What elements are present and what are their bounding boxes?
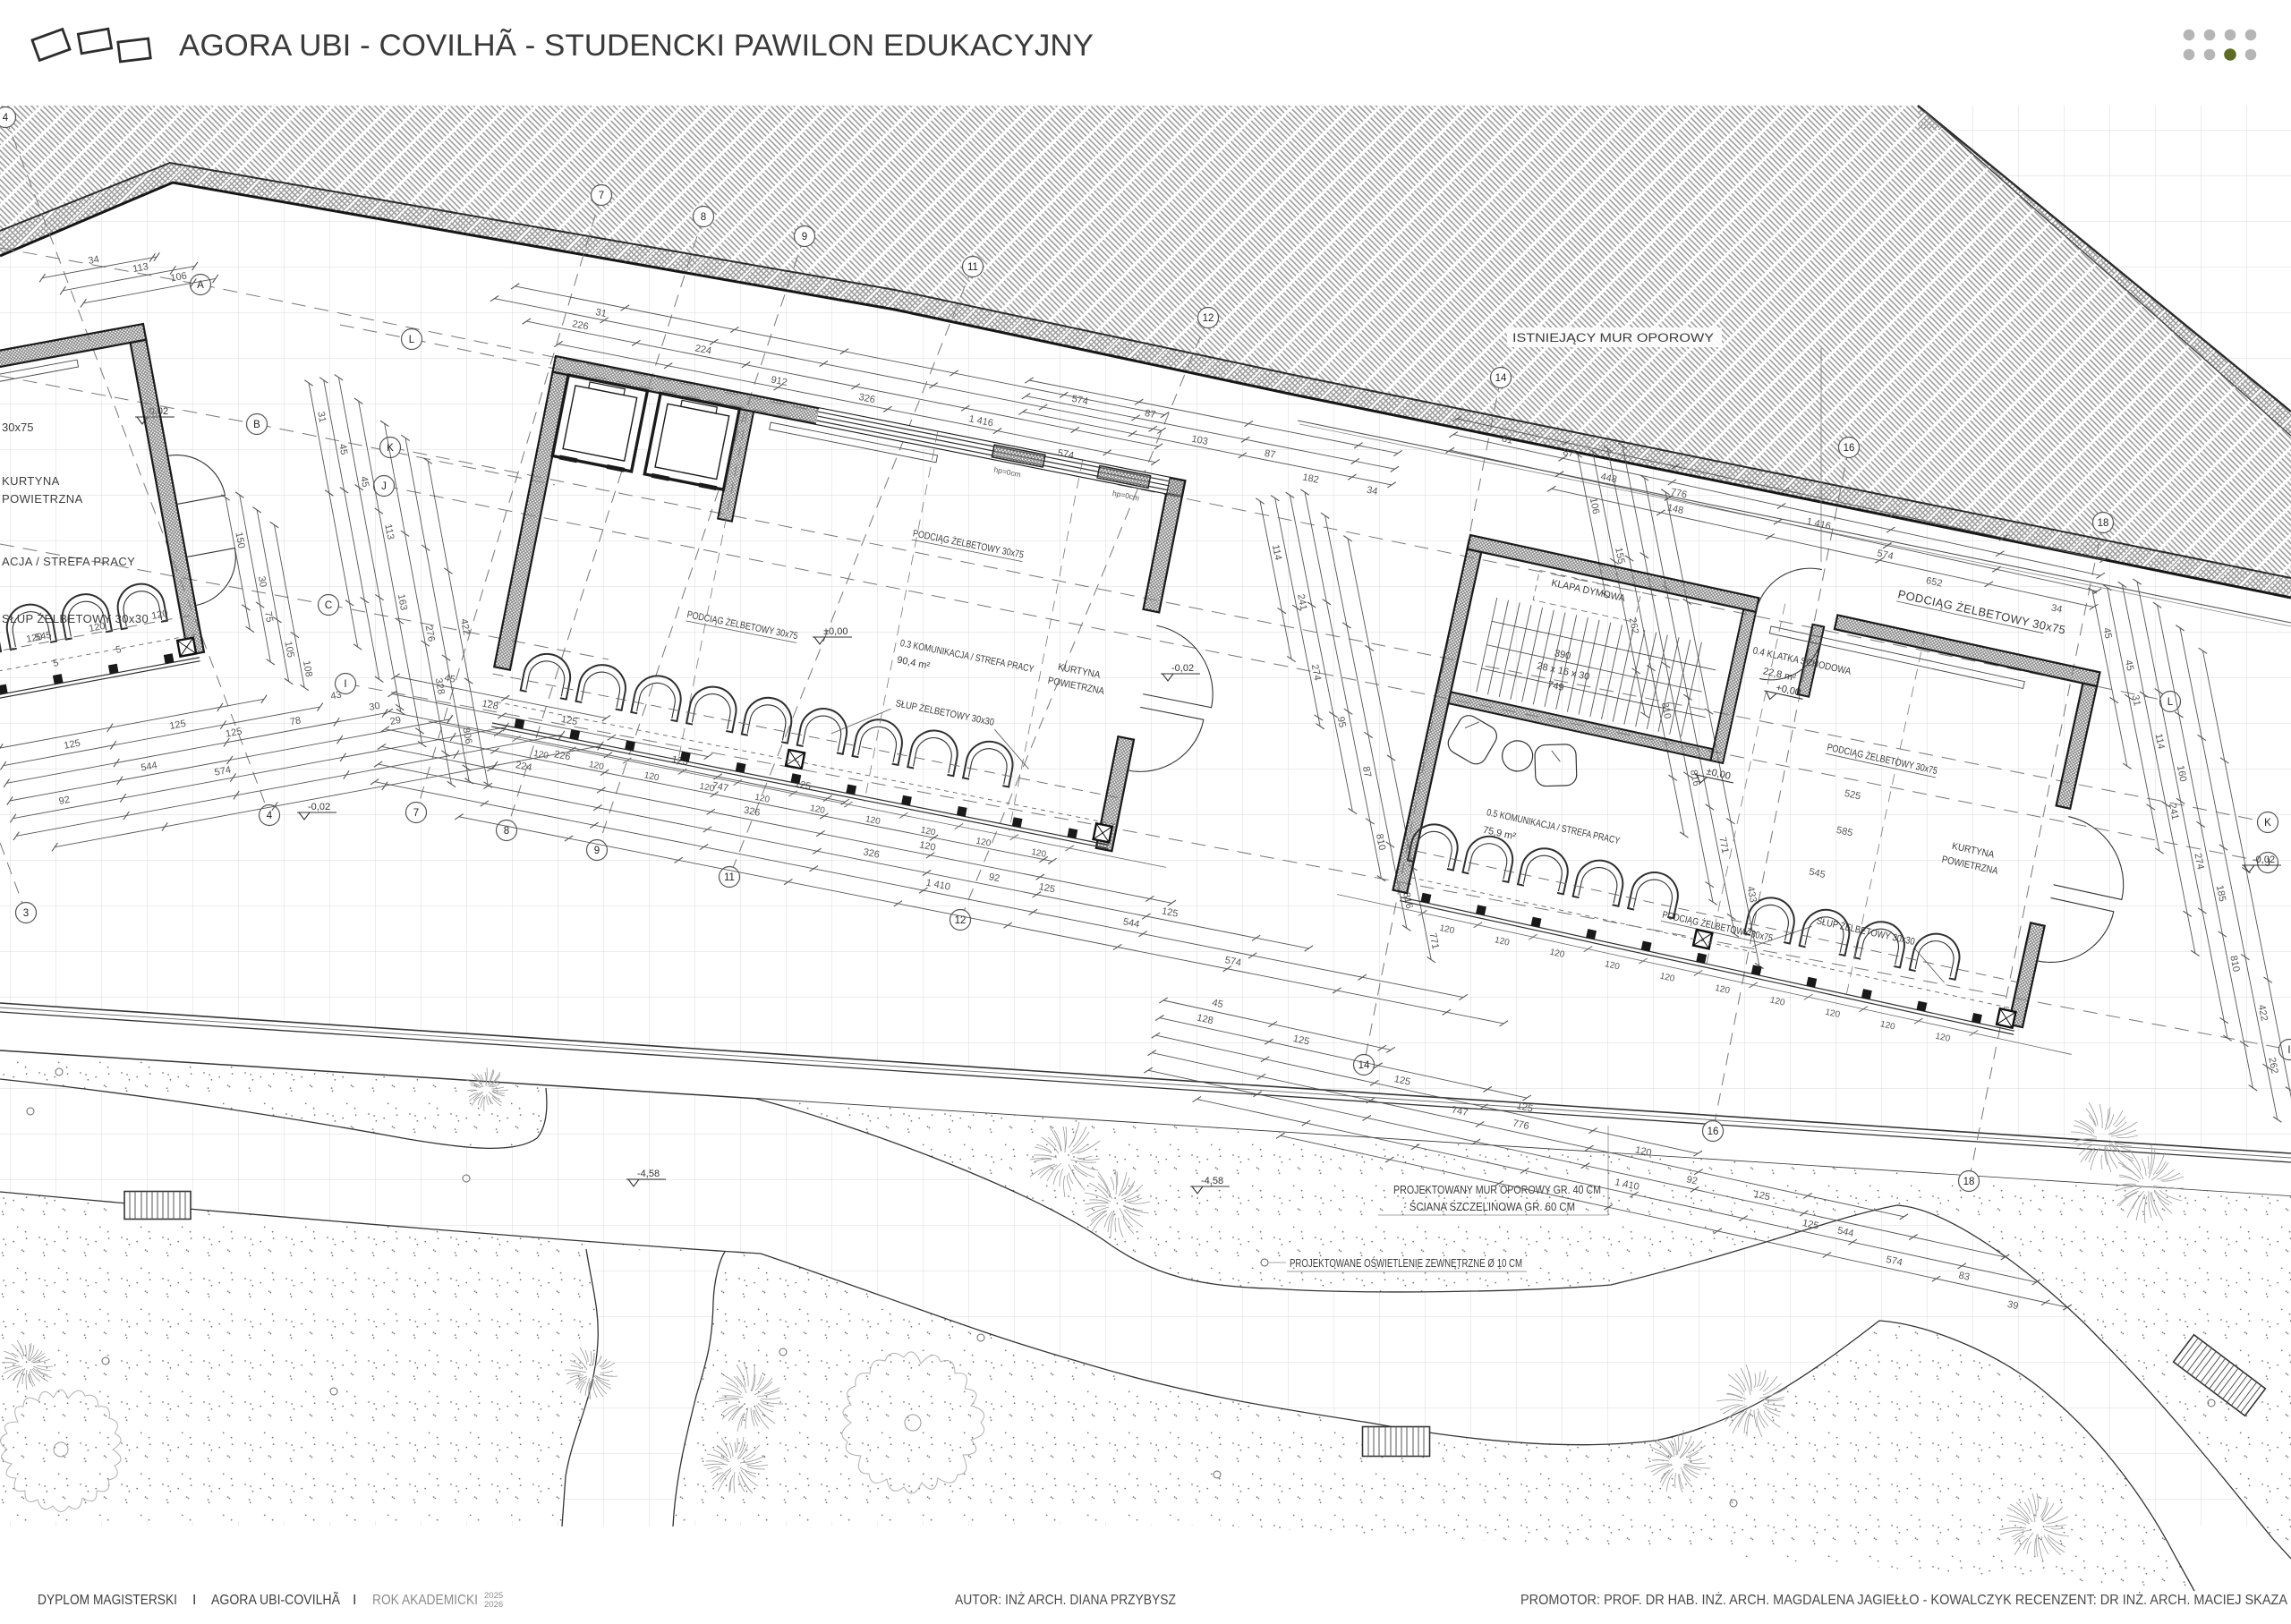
svg-text:4: 4 <box>267 811 273 821</box>
svg-text:I: I <box>192 1593 196 1608</box>
svg-text:39: 39 <box>2006 1299 2020 1312</box>
svg-text:16: 16 <box>1708 1127 1719 1137</box>
svg-text:SŁUP ŻELBETOWY 30x30: SŁUP ŻELBETOWY 30x30 <box>2 612 149 625</box>
svg-text:29: 29 <box>389 715 402 727</box>
svg-text:POWIETRZNA: POWIETRZNA <box>2 492 83 506</box>
svg-text:14: 14 <box>1495 373 1507 384</box>
svg-text:-4,58: -4,58 <box>1201 1176 1223 1186</box>
svg-text:-0,02: -0,02 <box>1171 663 1194 674</box>
svg-text:L: L <box>409 335 415 345</box>
svg-text:· ŚCIANA SZCZELINOWA GR. 60 CM: · ŚCIANA SZCZELINOWA GR. 60 CM <box>1403 1200 1575 1213</box>
svg-text:31: 31 <box>2130 694 2142 707</box>
svg-text:78: 78 <box>289 715 302 727</box>
svg-text:ISTNIEJĄCY MUR OPOROWY: ISTNIEJĄCY MUR OPOROWY <box>1512 331 1714 344</box>
svg-text:45: 45 <box>1211 998 1224 1010</box>
svg-text:75: 75 <box>262 610 275 623</box>
svg-text:KURTYNA: KURTYNA <box>2 474 60 488</box>
svg-text:95: 95 <box>1335 716 1348 728</box>
svg-text:45: 45 <box>358 475 370 488</box>
svg-text:87: 87 <box>1562 446 1575 459</box>
svg-text:7: 7 <box>413 808 419 819</box>
svg-text:DYPLOM MAGISTERSKI: DYPLOM MAGISTERSKI <box>38 1593 177 1608</box>
svg-text:30x75: 30x75 <box>2 421 33 434</box>
svg-text:11: 11 <box>967 262 978 273</box>
svg-text:30: 30 <box>256 575 268 588</box>
svg-text:18: 18 <box>2098 518 2109 529</box>
svg-text:ROK AKADEMICKI: ROK AKADEMICKI <box>372 1593 478 1608</box>
svg-text:81: 81 <box>1501 433 1514 446</box>
svg-text:K: K <box>2264 818 2271 829</box>
svg-text:I: I <box>353 1593 356 1608</box>
svg-text:PROJEKTOWANE OŚWIETLENIE ZEWNĘ: PROJEKTOWANE OŚWIETLENIE ZEWNĘTRZNE Ø 10… <box>1290 1256 1522 1270</box>
svg-text:92: 92 <box>988 872 1001 884</box>
svg-text:K: K <box>387 443 394 454</box>
svg-text:9: 9 <box>594 846 600 856</box>
svg-text:30: 30 <box>369 701 381 713</box>
svg-text:9: 9 <box>802 232 807 242</box>
svg-text:AGORA UBI - COVILHÃ - STUDENCK: AGORA UBI - COVILHÃ - STUDENCKI PAWILON … <box>179 29 1094 63</box>
svg-text:-4,58: -4,58 <box>637 1169 660 1179</box>
svg-text:92: 92 <box>58 795 71 807</box>
svg-text:45: 45 <box>2123 659 2135 671</box>
svg-text:B: B <box>253 420 260 430</box>
svg-text:I: I <box>344 679 346 690</box>
svg-text:8: 8 <box>701 212 706 223</box>
svg-text:J: J <box>381 481 387 492</box>
svg-text:45: 45 <box>336 443 349 455</box>
svg-text:87: 87 <box>1144 408 1156 421</box>
svg-text:92: 92 <box>1685 1174 1699 1186</box>
svg-text:7: 7 <box>599 191 604 201</box>
svg-text:31: 31 <box>315 411 328 423</box>
svg-text:83: 83 <box>1958 1271 1972 1283</box>
svg-text:AUTOR: INŻ ARCH. DIANA PRZYBYS: AUTOR: INŻ ARCH. DIANA PRZYBYSZ <box>955 1591 1176 1608</box>
svg-text:45: 45 <box>2101 627 2114 640</box>
svg-text:AGORA UBI-COVILHÃ: AGORA UBI-COVILHÃ <box>211 1590 340 1608</box>
svg-text:±0,00: ±0,00 <box>823 626 847 637</box>
svg-text:31: 31 <box>594 307 607 319</box>
svg-text:-0,02: -0,02 <box>308 802 330 812</box>
svg-text:-0,02: -0,02 <box>2253 855 2275 865</box>
svg-text:12: 12 <box>1203 313 1214 324</box>
svg-text:34: 34 <box>1366 485 1378 497</box>
svg-text:L: L <box>2168 697 2174 708</box>
svg-text:I: I <box>2287 1045 2290 1056</box>
svg-text:87: 87 <box>1360 765 1373 778</box>
svg-text:16: 16 <box>1844 443 1855 454</box>
svg-text:34: 34 <box>2050 602 2064 615</box>
svg-text:4: 4 <box>3 113 9 123</box>
svg-text:11: 11 <box>724 872 735 883</box>
svg-text:43: 43 <box>330 690 343 702</box>
svg-text:ACJA / STREFA PRACY: ACJA / STREFA PRACY <box>2 555 135 568</box>
svg-text:87: 87 <box>1264 448 1276 461</box>
svg-text:C: C <box>325 600 332 611</box>
svg-text:18: 18 <box>1963 1177 1975 1187</box>
svg-text:3: 3 <box>23 908 29 919</box>
svg-text:2026: 2026 <box>484 1600 503 1610</box>
svg-text:PROMOTOR: PROF. DR HAB. INŻ.: PROMOTOR: PROF. DR HAB. INŻ. ARCH. MAGDA… <box>1520 1591 2287 1608</box>
svg-text:34: 34 <box>88 254 100 267</box>
svg-text:8: 8 <box>504 826 509 837</box>
